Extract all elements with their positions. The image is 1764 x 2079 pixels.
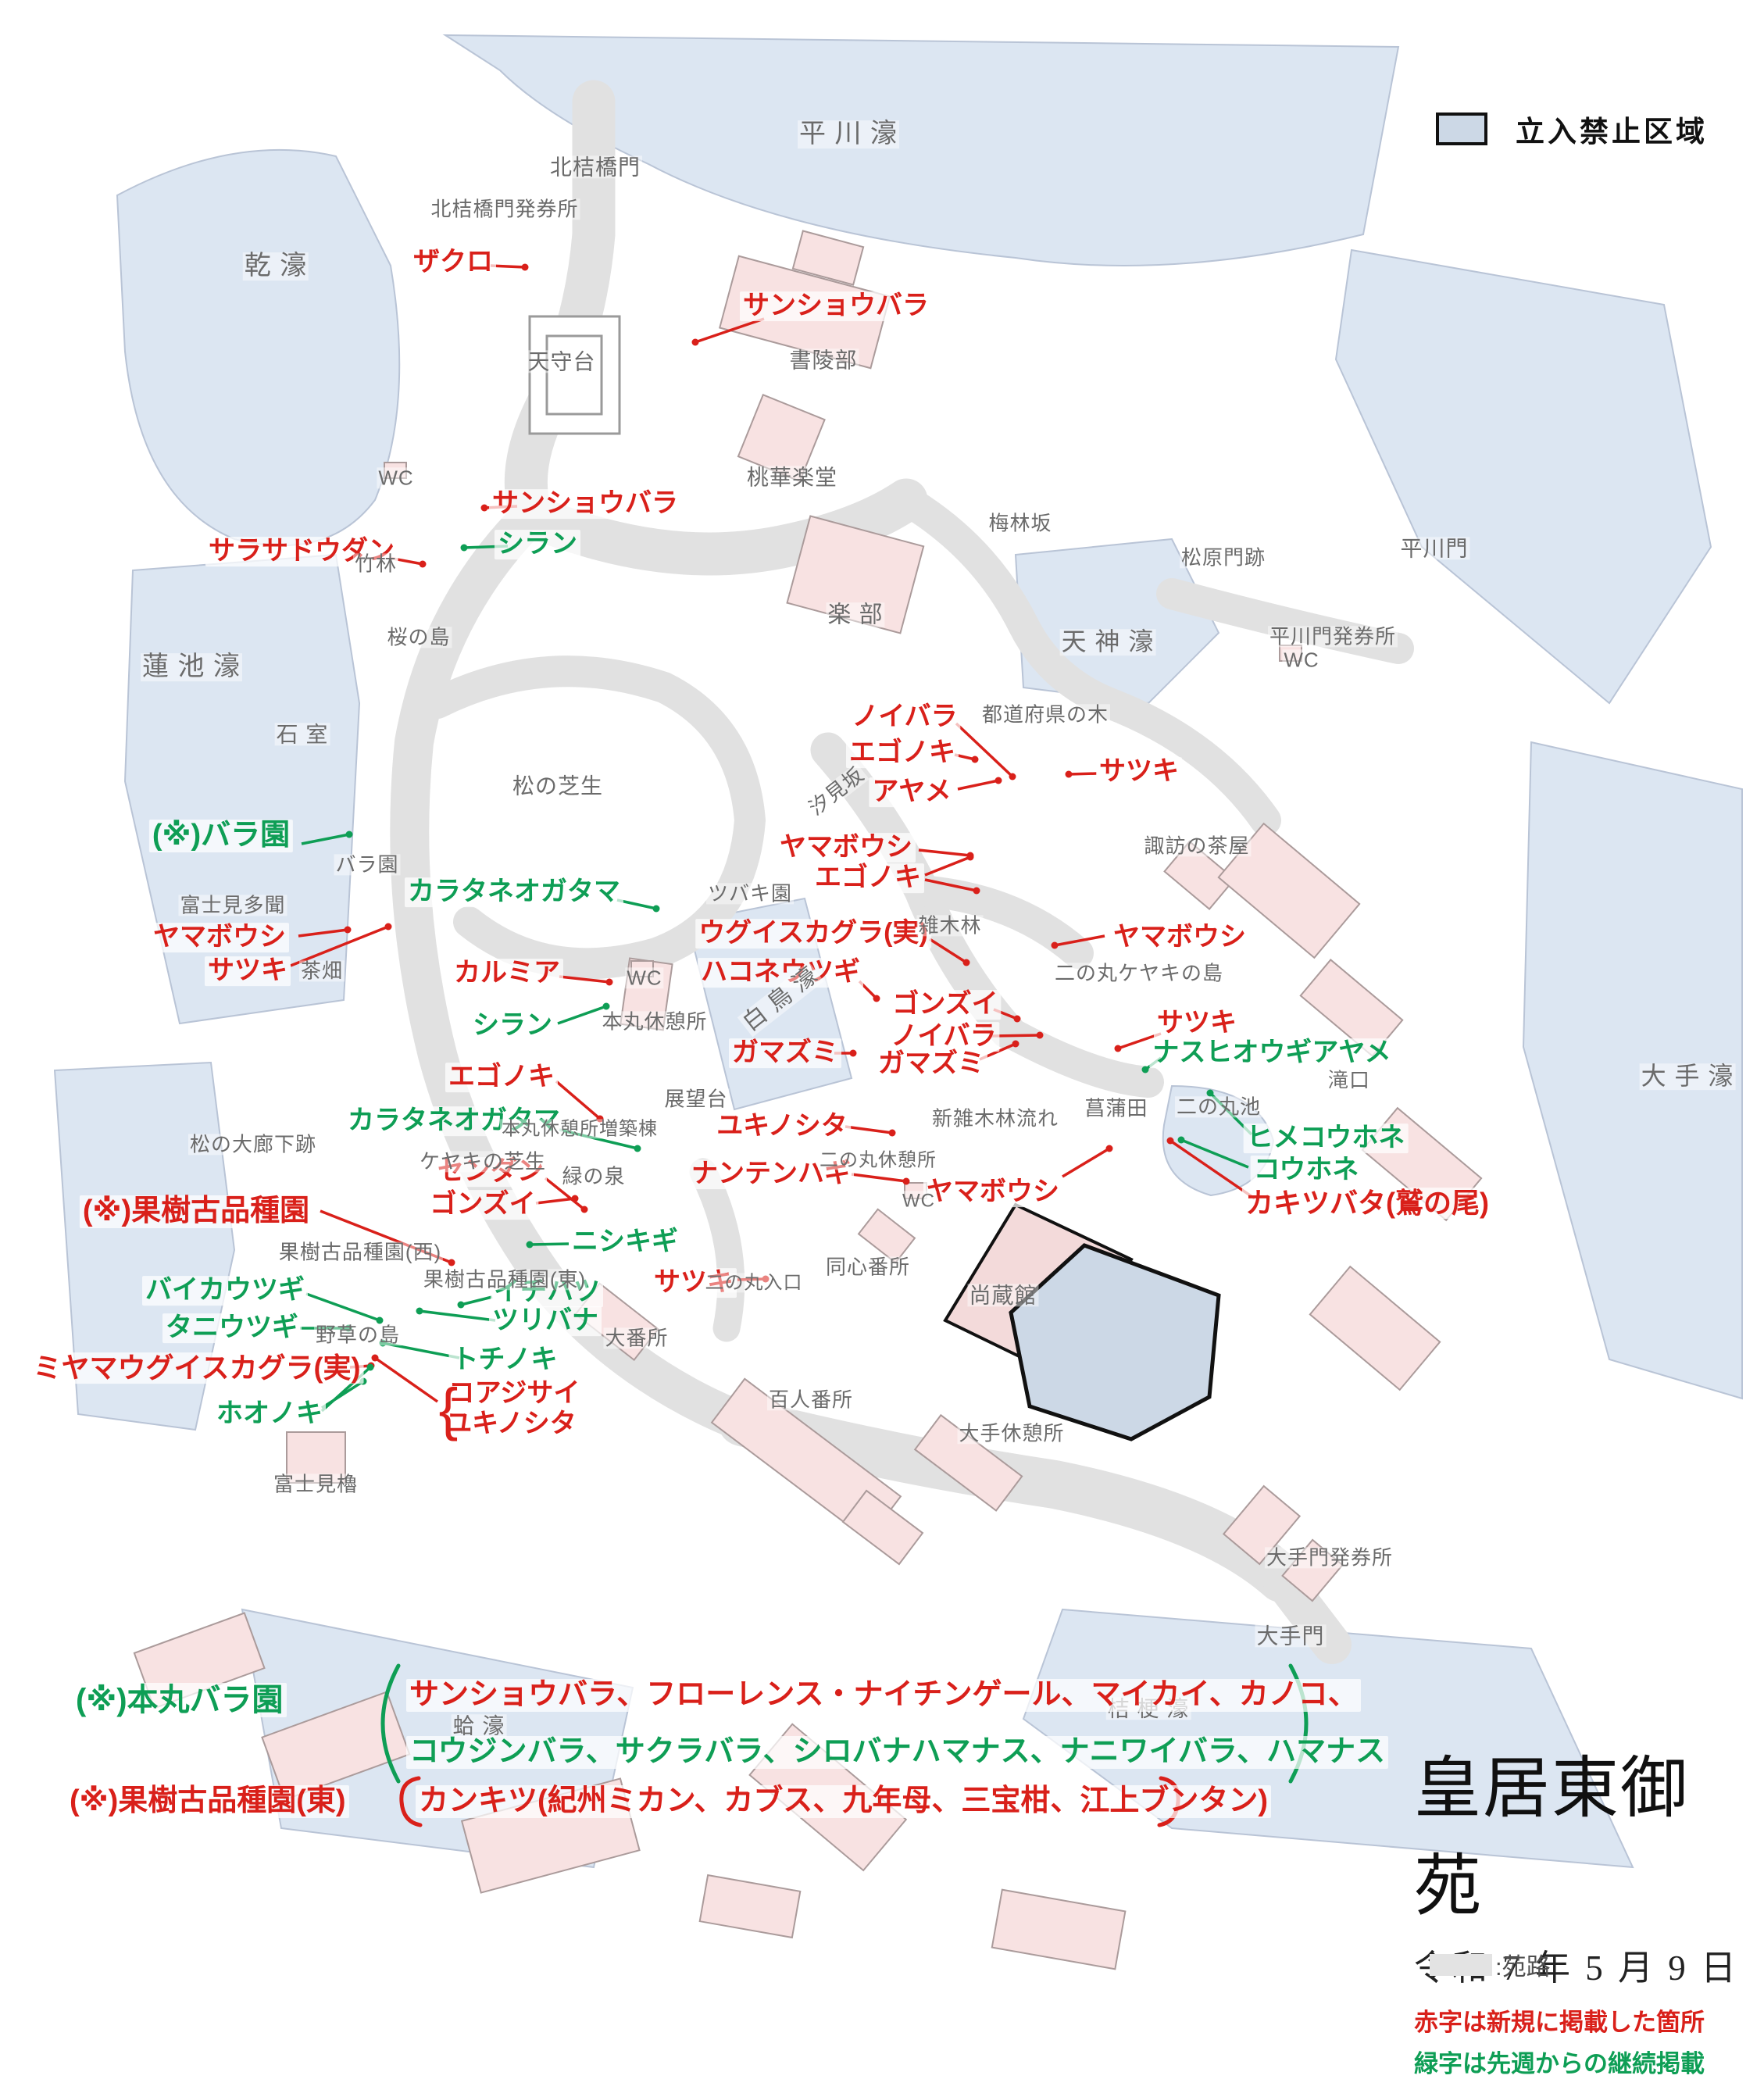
note-green: 緑字は先週からの継続掲載 [1414, 2044, 1750, 2079]
map-canvas: ザクロサンショウバラサンショウバラサラサドウダンシランノイバラエゴノキアヤメサツ… [0, 0, 1764, 2000]
no-entry-swatch [1436, 113, 1487, 145]
moat-shapes [55, 35, 1742, 1867]
tenshudai-base [530, 316, 620, 434]
no-entry-legend: 立入禁止区域 [1436, 108, 1708, 150]
path-legend: :苑路 [1430, 1947, 1551, 1982]
no-entry-label: 立入禁止区域 [1516, 108, 1708, 150]
page-title: 皇居東御苑 [1414, 1733, 1750, 1928]
path-swatch [1430, 1954, 1492, 1976]
title-block: 皇居東御苑 令和 7 年 5 月 9 日 赤字は新規に掲載した箇所 緑字は先週か… [1414, 1733, 1750, 2079]
path-label: :苑路 [1495, 1947, 1551, 1982]
imperial-garden-map [0, 0, 1764, 2000]
note-red: 赤字は新規に掲載した箇所 [1414, 2002, 1750, 2038]
